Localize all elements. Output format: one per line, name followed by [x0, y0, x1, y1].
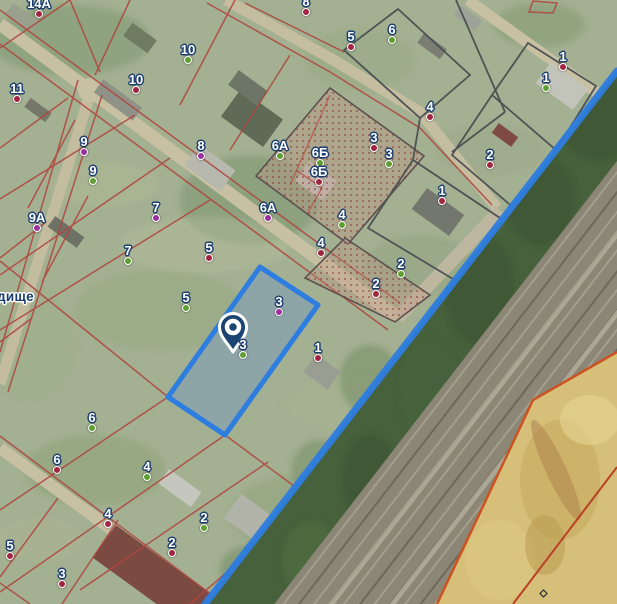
parcel-number: 5: [6, 539, 13, 552]
parcel-number: 1: [542, 71, 549, 84]
parcel-number: 10: [129, 73, 143, 86]
parcel-point-dot[interactable]: [132, 86, 140, 94]
parcel-number: 3: [58, 567, 65, 580]
parcel-point-dot[interactable]: [397, 270, 405, 278]
parcel-number: 14A: [27, 0, 51, 10]
parcel-number: 6: [53, 453, 60, 466]
parcel-point-dot[interactable]: [385, 160, 393, 168]
parcel-point-dot[interactable]: [152, 214, 160, 222]
parcel-number: 6: [388, 23, 395, 36]
parcel-number: 3: [370, 131, 377, 144]
parcel-number: 11: [10, 82, 24, 95]
parcel-point-dot[interactable]: [104, 520, 112, 528]
place-name-label: дище: [0, 289, 34, 304]
parcel-point-dot[interactable]: [315, 178, 323, 186]
parcel-point-dot[interactable]: [80, 148, 88, 156]
parcel-point-dot[interactable]: [264, 214, 272, 222]
parcel-number: 1: [559, 50, 566, 63]
parcel-number: 9: [80, 135, 87, 148]
parcel-point-dot[interactable]: [143, 473, 151, 481]
parcel-number: 6Б: [312, 146, 329, 159]
parcel-point-dot[interactable]: [53, 466, 61, 474]
parcel-number: 9: [89, 164, 96, 177]
parcel-number: 6Б: [311, 165, 328, 178]
parcel-number: 3: [385, 147, 392, 160]
parcel-number: 5: [182, 291, 189, 304]
parcel-point-dot[interactable]: [89, 177, 97, 185]
parcel-point-dot[interactable]: [205, 254, 213, 262]
parcel-point-dot[interactable]: [542, 84, 550, 92]
parcel-number: 9A: [29, 211, 46, 224]
parcel-point-dot[interactable]: [200, 524, 208, 532]
parcel-number: 6A: [272, 139, 289, 152]
parcel-point-dot[interactable]: [347, 43, 355, 51]
parcel-number: 5: [347, 30, 354, 43]
parcel-number: 4: [104, 507, 111, 520]
parcel-point-dot[interactable]: [275, 308, 283, 316]
parcel-number: 2: [397, 257, 404, 270]
parcel-number: 4: [426, 100, 433, 113]
parcel-point-dot[interactable]: [6, 552, 14, 560]
parcel-number: 4: [317, 236, 324, 249]
parcel-point-dot[interactable]: [58, 580, 66, 588]
parcel-point-dot[interactable]: [317, 249, 325, 257]
parcel-point-dot[interactable]: [13, 95, 21, 103]
parcel-number: 2: [200, 511, 207, 524]
parcel-number: 3: [239, 338, 246, 351]
parcel-point-dot[interactable]: [35, 10, 43, 18]
parcel-point-dot[interactable]: [33, 224, 41, 232]
parcel-point-dot[interactable]: [88, 424, 96, 432]
parcel-number: 7: [152, 201, 159, 214]
parcel-number: 6A: [260, 201, 277, 214]
parcel-number: 7: [124, 244, 131, 257]
parcel-point-dot[interactable]: [438, 197, 446, 205]
parcel-point-dot[interactable]: [314, 354, 322, 362]
parcel-point-dot[interactable]: [559, 63, 567, 71]
parcel-point-dot[interactable]: [276, 152, 284, 160]
parcel-number: 6: [88, 411, 95, 424]
parcel-point-dot[interactable]: [426, 113, 434, 121]
parcel-point-dot[interactable]: [168, 549, 176, 557]
parcel-number: 8: [197, 139, 204, 152]
parcel-number: 2: [372, 277, 379, 290]
parcel-labels-layer: 14A111010999A7785686A6Б6Б6A5533133214422…: [0, 0, 617, 604]
parcel-number: 3: [275, 295, 282, 308]
parcel-point-dot[interactable]: [370, 144, 378, 152]
parcel-point-dot[interactable]: [239, 351, 247, 359]
parcel-point-dot[interactable]: [184, 56, 192, 64]
parcel-point-dot[interactable]: [302, 8, 310, 16]
parcel-number: 10: [181, 43, 195, 56]
parcel-point-dot[interactable]: [486, 161, 494, 169]
parcel-point-dot[interactable]: [124, 257, 132, 265]
parcel-point-dot[interactable]: [372, 290, 380, 298]
parcel-number: 1: [314, 341, 321, 354]
parcel-point-dot[interactable]: [197, 152, 205, 160]
parcel-point-dot[interactable]: [338, 221, 346, 229]
parcel-number: 1: [438, 184, 445, 197]
parcel-number: 2: [168, 536, 175, 549]
parcel-number: 4: [143, 460, 150, 473]
parcel-number: 5: [205, 241, 212, 254]
parcel-number: 4: [338, 208, 345, 221]
parcel-point-dot[interactable]: [388, 36, 396, 44]
map-canvas[interactable]: 14A111010999A7785686A6Б6Б6A5533133214422…: [0, 0, 617, 604]
parcel-point-dot[interactable]: [182, 304, 190, 312]
parcel-number: 2: [486, 148, 493, 161]
parcel-number: 8: [302, 0, 309, 8]
